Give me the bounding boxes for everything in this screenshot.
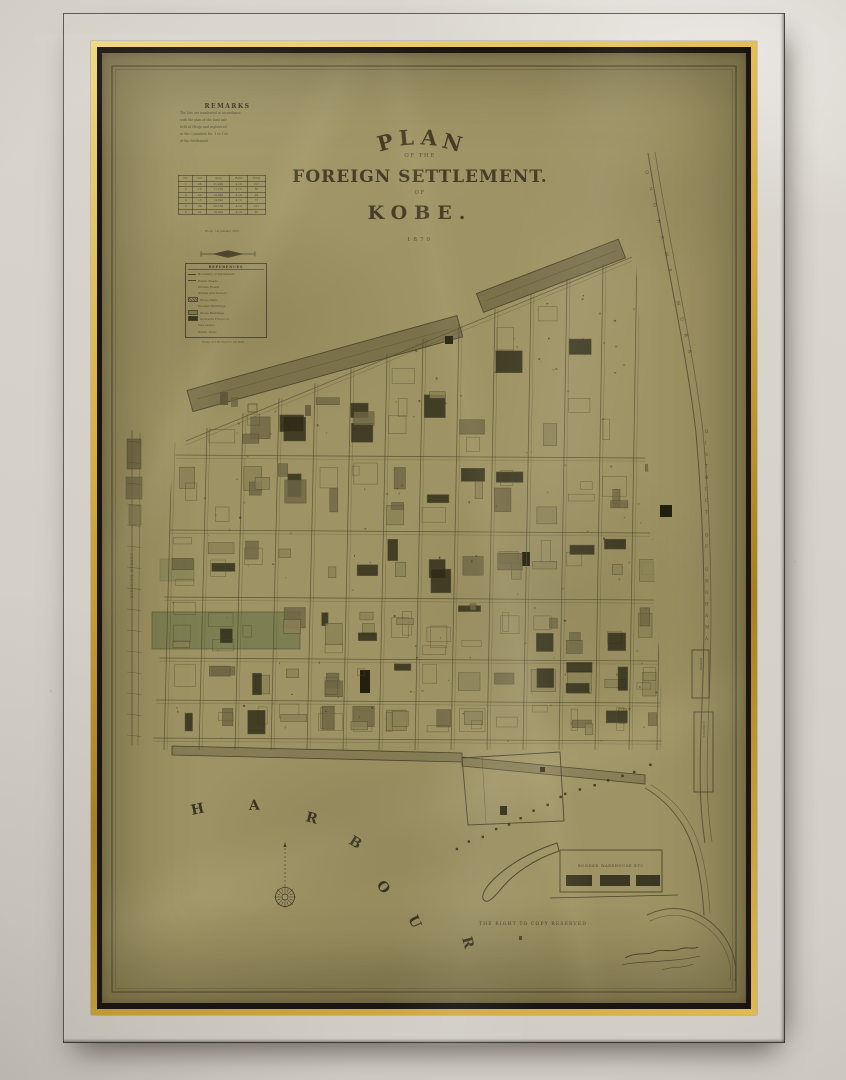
legend-rows: Boundary of SettlementPublic RoadsPrivat… [188, 271, 264, 335]
enclosure-label-2: GODOWNS [702, 721, 706, 737]
copyright-note: THE RIGHT TO COPY RESERVED [479, 921, 587, 927]
harbour-letter: A [248, 798, 262, 814]
compass-ray [277, 894, 280, 895]
edge-letter-vertical: T [705, 510, 708, 515]
legend-swatch-blank-icon [188, 330, 196, 333]
harbour-letter: R [304, 809, 320, 827]
edge-letter-vertical: O [705, 533, 709, 538]
legend-label: Boundary of Settlement [198, 272, 234, 276]
edge-letter-vertical: A [704, 636, 709, 641]
title-block: PLAN OF THE FOREIGN SETTLEMENT. OF KOBE.… [270, 125, 570, 243]
enclosure-label-1: HATOBA [699, 658, 703, 672]
warehouse-label: BONDED WAREHOUSE ETC [578, 864, 644, 868]
wooden-picture-frame: DIVISION STREET [63, 13, 785, 1043]
boundary-dot [633, 771, 635, 773]
road-tick [127, 693, 141, 695]
edge-letter-vertical: O [705, 567, 709, 572]
table-cell: 92 [247, 209, 265, 215]
harbour-letter: R [458, 935, 477, 951]
legend-heading: REFERENCES [188, 265, 264, 270]
edge-letter-vertical: F [705, 544, 708, 549]
photo-framed-kobe-map: { "scene": { "wall_color": "#d8d4cc", "f… [0, 0, 846, 1080]
legend-label: Stone Walls [200, 298, 218, 302]
edge-letter-vertical: M [705, 625, 710, 630]
edge-letter-vertical: A [704, 613, 709, 618]
edge-letter-vertical: O [705, 590, 709, 595]
edge-letter-vertical: D [705, 429, 709, 434]
boundary-dot [547, 804, 549, 806]
references-legend: REFERENCES Boundary of SettlementPublic … [185, 263, 267, 338]
compass-ray [282, 889, 283, 892]
table-caption: Hiogo, 1st January 1870 [176, 229, 268, 233]
boundary-dot [495, 828, 497, 830]
harbour-letter: H [190, 801, 206, 819]
remarks-lines: The lots are numbered in accordancewith … [180, 110, 275, 145]
legend-row: Public Wells [188, 329, 264, 335]
title-main: FOREIGN SETTLEMENT. [270, 167, 570, 187]
remarks-line: at the Consulate No. 1 to 126 [180, 131, 275, 138]
legend-swatch-black-icon [188, 316, 198, 321]
edge-letter-vertical: I [705, 441, 707, 446]
lot-table: No.LotAreaRentTotal12621,4004.1010721817… [178, 175, 266, 215]
west-boundary-road [126, 430, 142, 745]
title-of: OF [270, 190, 570, 196]
boundary-dot [564, 793, 566, 795]
road-tick [127, 546, 141, 548]
scale-note: Scale of 160 Feet to an Inch [180, 340, 266, 344]
boundary-dot [482, 836, 484, 838]
table-row: 62118,4004.1092 [179, 209, 266, 215]
remarks-heading: REMARKS [180, 103, 275, 110]
signature-scribble [622, 947, 700, 970]
table-cell: 18,400 [207, 209, 230, 215]
harbour-letter: O [373, 878, 393, 897]
legend-label: Stone Buildings [200, 311, 224, 315]
black-lot-3 [445, 336, 453, 344]
table-cell: 4.10 [230, 209, 247, 215]
edge-letter-vertical: R [705, 475, 709, 480]
compass-ray [287, 899, 292, 904]
edge-letter-vertical: H [705, 602, 709, 607]
compass-ray [277, 889, 282, 894]
boundary-dot [649, 764, 651, 766]
boundary-dot [560, 796, 562, 798]
legend-swatch-line-icon [188, 280, 196, 281]
legend-label: Public Roads [198, 279, 218, 283]
black-lot-1 [360, 670, 370, 693]
black-lot-4 [660, 505, 672, 517]
map-sheet: DIVISION STREET [102, 53, 746, 1003]
compass-ray [277, 899, 282, 904]
legend-label: Godowns Fireproof [200, 317, 229, 321]
legend-swatch-line-icon [188, 274, 196, 275]
edge-letter-vertical: I [705, 487, 707, 492]
legend-label: Wooden Buildings [198, 304, 225, 308]
edge-letter-vertical: N [705, 579, 709, 584]
road-tick [127, 672, 141, 674]
boundary-dot [621, 775, 623, 777]
edge-letter-diagonal: A [658, 234, 665, 241]
edge-letter-diagonal: N [647, 186, 654, 192]
boundary-dot [607, 779, 609, 781]
ikuta-river [648, 152, 712, 843]
legend-label: Public Wells [198, 330, 217, 334]
legend-swatch-blank-icon [188, 285, 196, 288]
compass-ray [290, 894, 293, 895]
harbour-letter: U [404, 913, 424, 931]
legend-label: Drains and Sewers [198, 291, 227, 295]
bonded-warehouse: BONDED WAREHOUSE ETC [550, 850, 678, 898]
remarks-line: with the plan of the land sale [180, 117, 275, 124]
edge-letter-vertical: T [705, 464, 708, 469]
title-of-the: OF THE [270, 153, 570, 159]
boundary-dot [456, 848, 458, 850]
boundary-dot [579, 788, 581, 790]
boundary-dot [468, 840, 470, 842]
compass-ray [277, 899, 280, 900]
waterfront-bund [172, 746, 645, 784]
edge-letter-vertical: S [705, 452, 708, 457]
boundary-dot [594, 784, 596, 786]
title-city: KOBE. [270, 202, 570, 224]
road-tick [127, 735, 141, 737]
title-year: 1870 [270, 237, 570, 243]
legend-swatch-gray-icon [188, 310, 198, 315]
boundary-dot [508, 823, 510, 825]
edge-letter-vertical: C [705, 498, 708, 503]
boundary-dot [520, 817, 522, 819]
legend-label: Gas Lamps [198, 323, 215, 327]
table-cell: 21 [193, 209, 207, 215]
remarks-line: The lots are numbered in accordance [180, 110, 275, 117]
legend-swatch-hatch-icon [188, 297, 198, 302]
boundary-dot [532, 810, 534, 812]
edge-letter-diagonal: A [686, 348, 693, 355]
copyright-note-mark [519, 936, 522, 940]
legend-swatch-blank-icon [188, 324, 196, 327]
harbour-letter: B [346, 833, 365, 853]
edge-letter-diagonal: O [643, 170, 650, 176]
compass-ray [282, 902, 283, 905]
compass-ray [287, 889, 292, 894]
scale-bar [201, 250, 255, 258]
legend-swatch-blank-icon [188, 292, 196, 295]
edge-letter-diagonal: A [666, 267, 673, 274]
legend-swatch-blank-icon [188, 305, 196, 308]
title-plan: PLAN [270, 125, 570, 150]
edge-letter-diagonal: U [678, 316, 685, 322]
table-cell: 6 [179, 209, 193, 215]
remarks-line: held at Hiogo and registered [180, 124, 275, 131]
compass-ray [287, 889, 288, 892]
compass-ray [290, 899, 293, 900]
remarks-line: of the Settlement [180, 138, 275, 145]
compass-ray [287, 902, 288, 905]
legend-label: Private Roads [198, 285, 219, 289]
hook-pier [483, 843, 559, 901]
remarks-block: REMARKS The lots are numbered in accorda… [180, 103, 275, 145]
west-road-label: DIVISION STREET [130, 552, 134, 598]
road-tick [127, 714, 141, 716]
